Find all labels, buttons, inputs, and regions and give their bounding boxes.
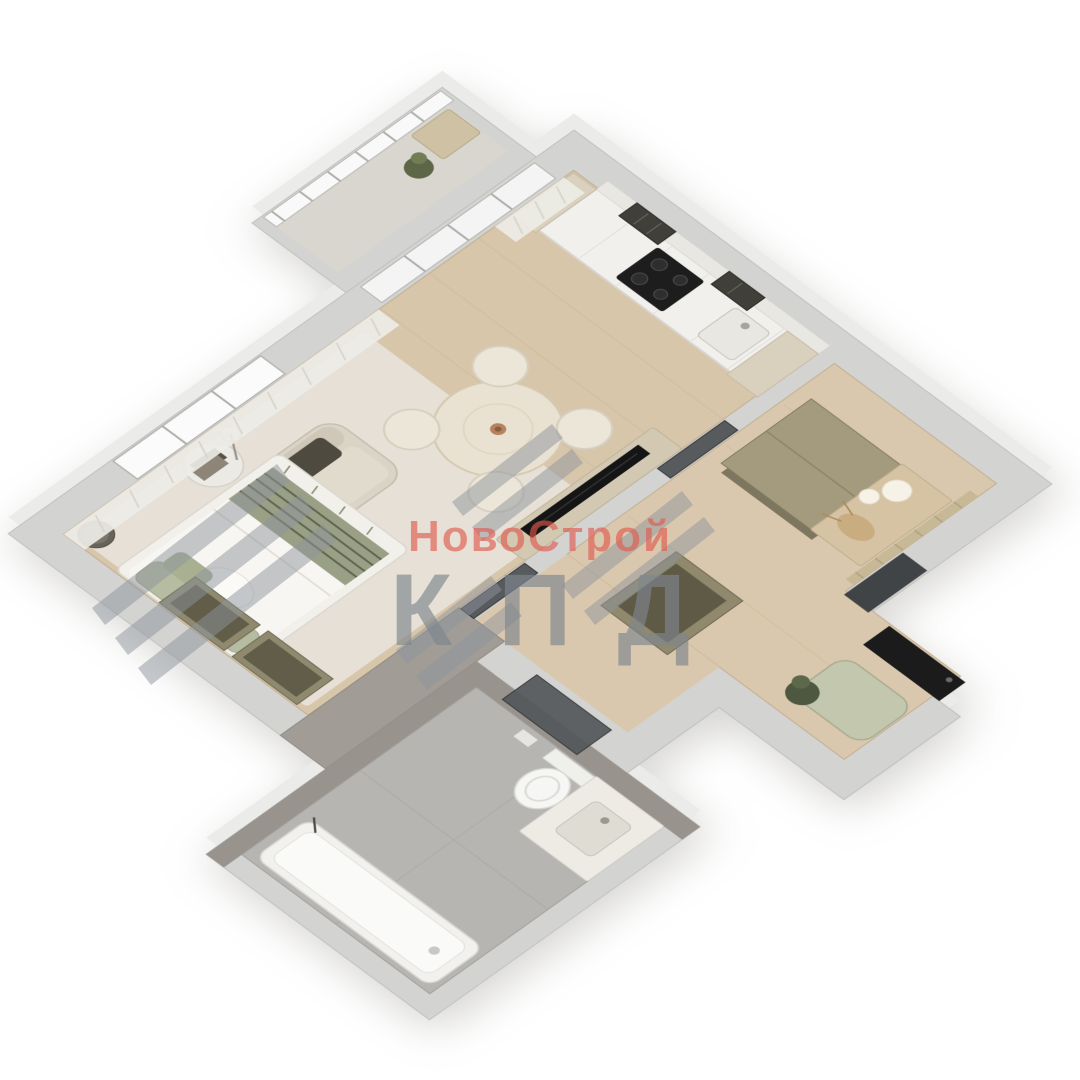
- floor-plan-canvas: НовоСтройКПД: [0, 0, 1080, 1080]
- floor-plan-render: НовоСтройКПД: [0, 0, 1080, 1080]
- watermark-logo-text: КПД: [390, 553, 736, 667]
